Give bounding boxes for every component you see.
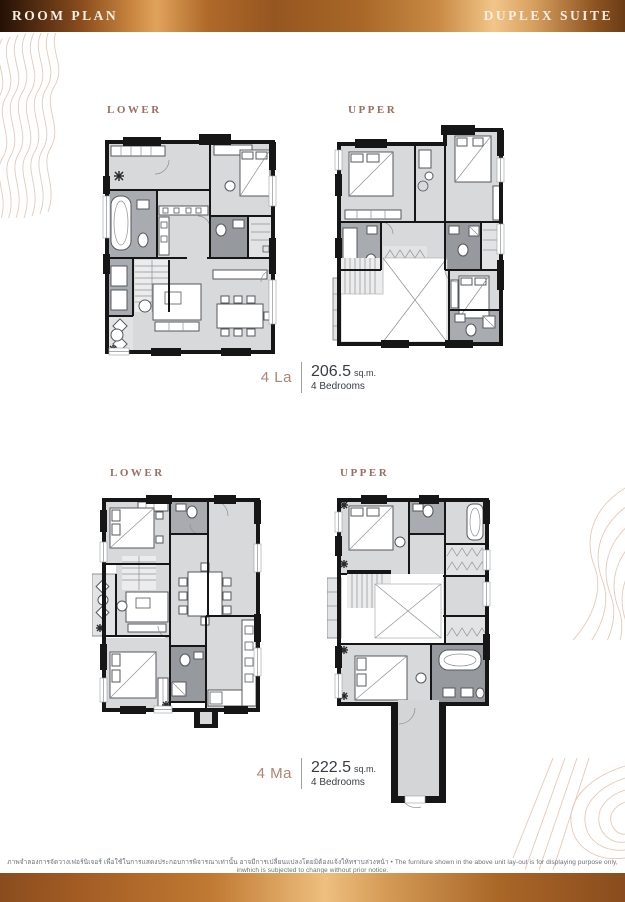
sink (137, 200, 149, 209)
divider (301, 758, 302, 789)
disclaimer-thai: ภาพจำลองการจัดวางเฟอร์นิเจอร์ เพื่อใช้ใน… (7, 859, 388, 866)
unit-area-unit: sq.m. (354, 368, 376, 378)
unit-info-4ma: 4 Ma 222.5sq.m. 4 Bedrooms (250, 758, 376, 789)
unit-area: 222.5 (311, 759, 351, 776)
void-open-to-below (375, 584, 441, 638)
entry-stub (200, 712, 212, 724)
console-counter (213, 270, 267, 279)
floorplan-4ma-lower-drawing (92, 486, 272, 731)
contour-topleft-decoration (0, 33, 100, 218)
stairs (341, 258, 383, 294)
disclaimer-bullet: • (391, 859, 393, 866)
stairs (122, 556, 156, 590)
sink (233, 220, 244, 228)
contour-bottomright-decoration (505, 758, 625, 870)
header-subtitle: DUPLEX SUITE (484, 8, 613, 24)
unit-bedrooms: 4 Bedrooms (311, 777, 376, 789)
unit-info-4la: 4 La 206.5sq.m. 4 Bedrooms (250, 362, 376, 393)
plant-icon (340, 501, 348, 509)
divider (301, 362, 302, 393)
footer-bar (0, 873, 625, 902)
bathtub (439, 650, 481, 670)
disclaimer-text: ภาพจำลองการจัดวางเฟอร์นิเจอร์ เพื่อใช้ใน… (0, 857, 625, 874)
floorplan-4la-lower-label: LOWER (107, 104, 162, 116)
plant-icon (340, 560, 348, 568)
wardrobe (111, 146, 165, 156)
floorplan-4ma-upper-label: UPPER (340, 467, 389, 479)
plant-icon (114, 171, 124, 181)
toilet (138, 233, 148, 247)
floorplan-4la-lower-drawing (95, 120, 285, 360)
unit-code: 4 Ma (250, 765, 292, 782)
floorplan-4la-upper-drawing (323, 118, 515, 356)
contour-right-decoration (543, 428, 625, 640)
unit-area: 206.5 (311, 363, 351, 380)
unit-code: 4 La (250, 369, 292, 386)
bathtub (467, 504, 483, 540)
floorplan-4ma-lower-label: LOWER (110, 467, 165, 479)
header-bar: ROOM PLAN DUPLEX SUITE (0, 0, 625, 32)
brochure-page: ROOM PLAN DUPLEX SUITE LOWER UPPER (0, 0, 625, 902)
bathtub (111, 196, 131, 250)
floorplan-4la-upper-label: UPPER (348, 104, 397, 116)
toilet (216, 224, 226, 236)
entry-corridor (391, 700, 446, 808)
page-title: ROOM PLAN (12, 8, 118, 24)
unit-area-unit: sq.m. (354, 764, 376, 774)
unit-bedrooms: 4 Bedrooms (311, 381, 376, 393)
